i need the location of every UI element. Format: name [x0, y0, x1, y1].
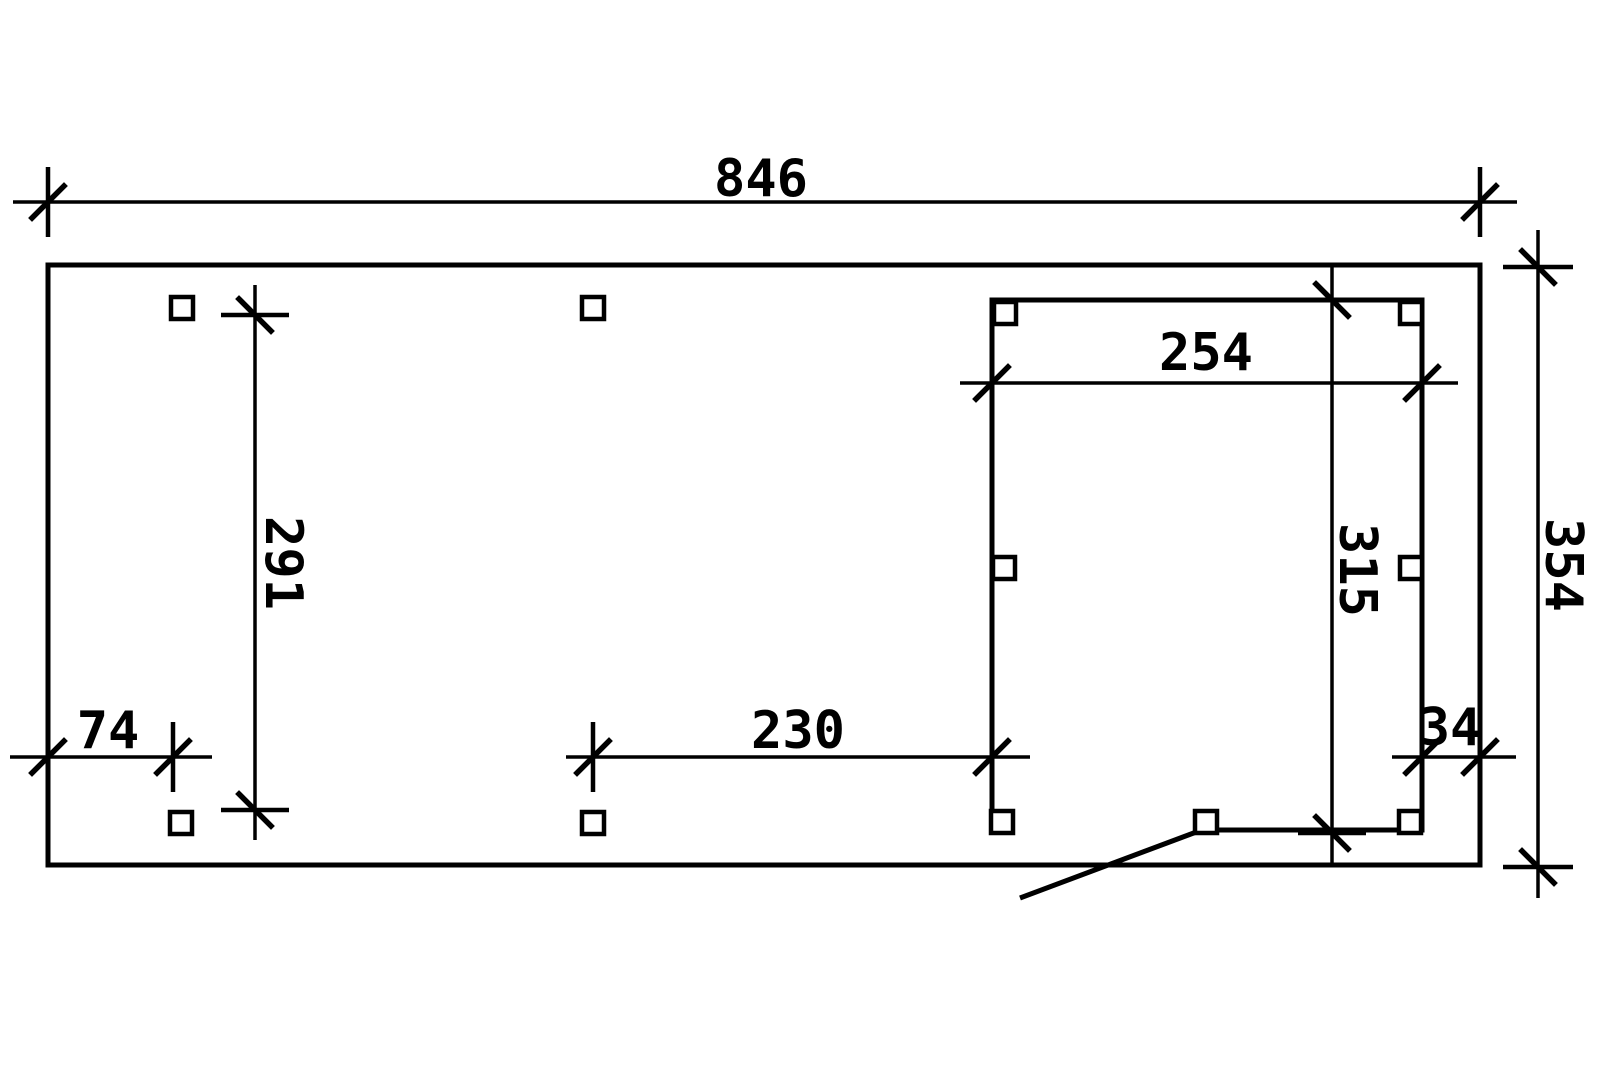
carport-floor-plan: 846 354 291 74 [0, 0, 1600, 1066]
post-square [1195, 811, 1217, 833]
dimension-label-74: 74 [77, 701, 140, 761]
dimension-middle-bay-width: 230 [566, 701, 1030, 792]
dimension-label-230: 230 [751, 701, 845, 761]
dimension-label-34: 34 [1419, 698, 1482, 758]
post-square [1400, 302, 1422, 324]
post-square [993, 557, 1015, 579]
dimension-label-291: 291 [253, 516, 313, 610]
dimension-room-width: 254 [960, 323, 1458, 418]
dimension-rear-post-offset: 34 [1392, 698, 1516, 792]
dimension-label-315: 315 [1327, 523, 1387, 617]
post-square [171, 297, 193, 319]
post-square [994, 302, 1016, 324]
drawing-canvas: 846 354 291 74 [0, 0, 1600, 1066]
dimension-label-846: 846 [714, 149, 808, 209]
dimension-total-width: 846 [13, 149, 1517, 237]
post-square [582, 812, 604, 834]
post-square [1400, 557, 1422, 579]
dimension-front-post-offset: 74 [10, 701, 212, 792]
dimension-room-depth: 315 [1298, 265, 1387, 865]
dimension-label-254: 254 [1159, 323, 1253, 383]
dimension-left-bay-depth: 291 [221, 285, 313, 840]
dimension-total-depth: 354 [1503, 230, 1593, 898]
post-square [991, 811, 1013, 833]
post-square [1399, 811, 1421, 833]
post-square [170, 812, 192, 834]
post-square [582, 297, 604, 319]
dimension-label-354: 354 [1533, 518, 1593, 612]
